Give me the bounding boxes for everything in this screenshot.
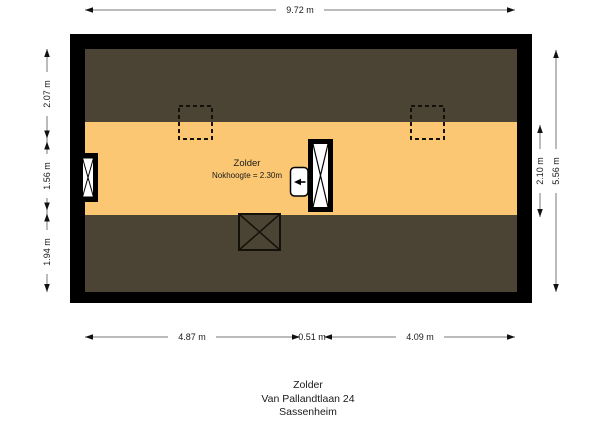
dim-bottom: 4.87 m 0.51 m 4.09 m <box>85 330 515 344</box>
arrow-left-icon <box>85 7 93 13</box>
caption: Zolder Van Pallandtlaan 24 Sassenheim <box>261 379 354 418</box>
arrow-down-icon <box>44 284 50 292</box>
roof-slope-bottom <box>85 215 517 292</box>
dim-left-label-2: 1.56 m <box>42 162 52 190</box>
dim-bottom-label-3: 4.09 m <box>406 332 434 342</box>
arrow-down-icon <box>44 203 50 211</box>
arrow-down-icon <box>553 284 559 292</box>
dim-bottom-label-2: 0.51 m <box>298 332 326 342</box>
dim-right-inner-label: 2.10 m <box>535 157 545 185</box>
window-icon <box>78 153 98 202</box>
floorplan-canvas: 9.72 m 2.07 m 1.56 m 1.94 m 2.10 m 5.56 … <box>0 0 600 424</box>
dim-right-outer-label: 5.56 m <box>551 157 561 185</box>
caption-city: Sassenheim <box>279 406 337 418</box>
dim-left-label-3: 1.94 m <box>42 238 52 266</box>
arrow-down-icon <box>44 131 50 139</box>
dim-top-label: 9.72 m <box>286 5 314 15</box>
roof-slope-top <box>85 49 517 122</box>
staircase-icon <box>308 139 333 212</box>
arrow-up-icon <box>44 49 50 57</box>
floorplan-page: 9.72 m 2.07 m 1.56 m 1.94 m 2.10 m 5.56 … <box>0 0 600 424</box>
dim-right-inner: 2.10 m <box>533 125 547 217</box>
dim-left-label-1: 2.07 m <box>42 80 52 108</box>
dim-bottom-label-1: 4.87 m <box>178 332 206 342</box>
arrow-up-icon <box>537 125 543 133</box>
arrow-left-icon <box>85 334 93 340</box>
dim-right-outer: 5.56 m <box>549 50 563 292</box>
arrow-up-icon <box>44 214 50 222</box>
arrow-right-icon <box>507 7 515 13</box>
room-name: Zolder <box>234 158 261 169</box>
room-ridge-height-note: Nokhoogte = 2.30m <box>212 171 282 180</box>
vent-unit-icon <box>291 168 309 197</box>
arrow-up-icon <box>553 50 559 58</box>
arrow-down-icon <box>537 209 543 217</box>
dim-top: 9.72 m <box>85 3 515 17</box>
arrow-right-icon <box>507 334 515 340</box>
caption-room: Zolder <box>293 379 323 391</box>
arrow-up-icon <box>44 142 50 150</box>
dim-left: 2.07 m 1.56 m 1.94 m <box>40 49 54 292</box>
caption-address: Van Pallandtlaan 24 <box>261 393 354 405</box>
